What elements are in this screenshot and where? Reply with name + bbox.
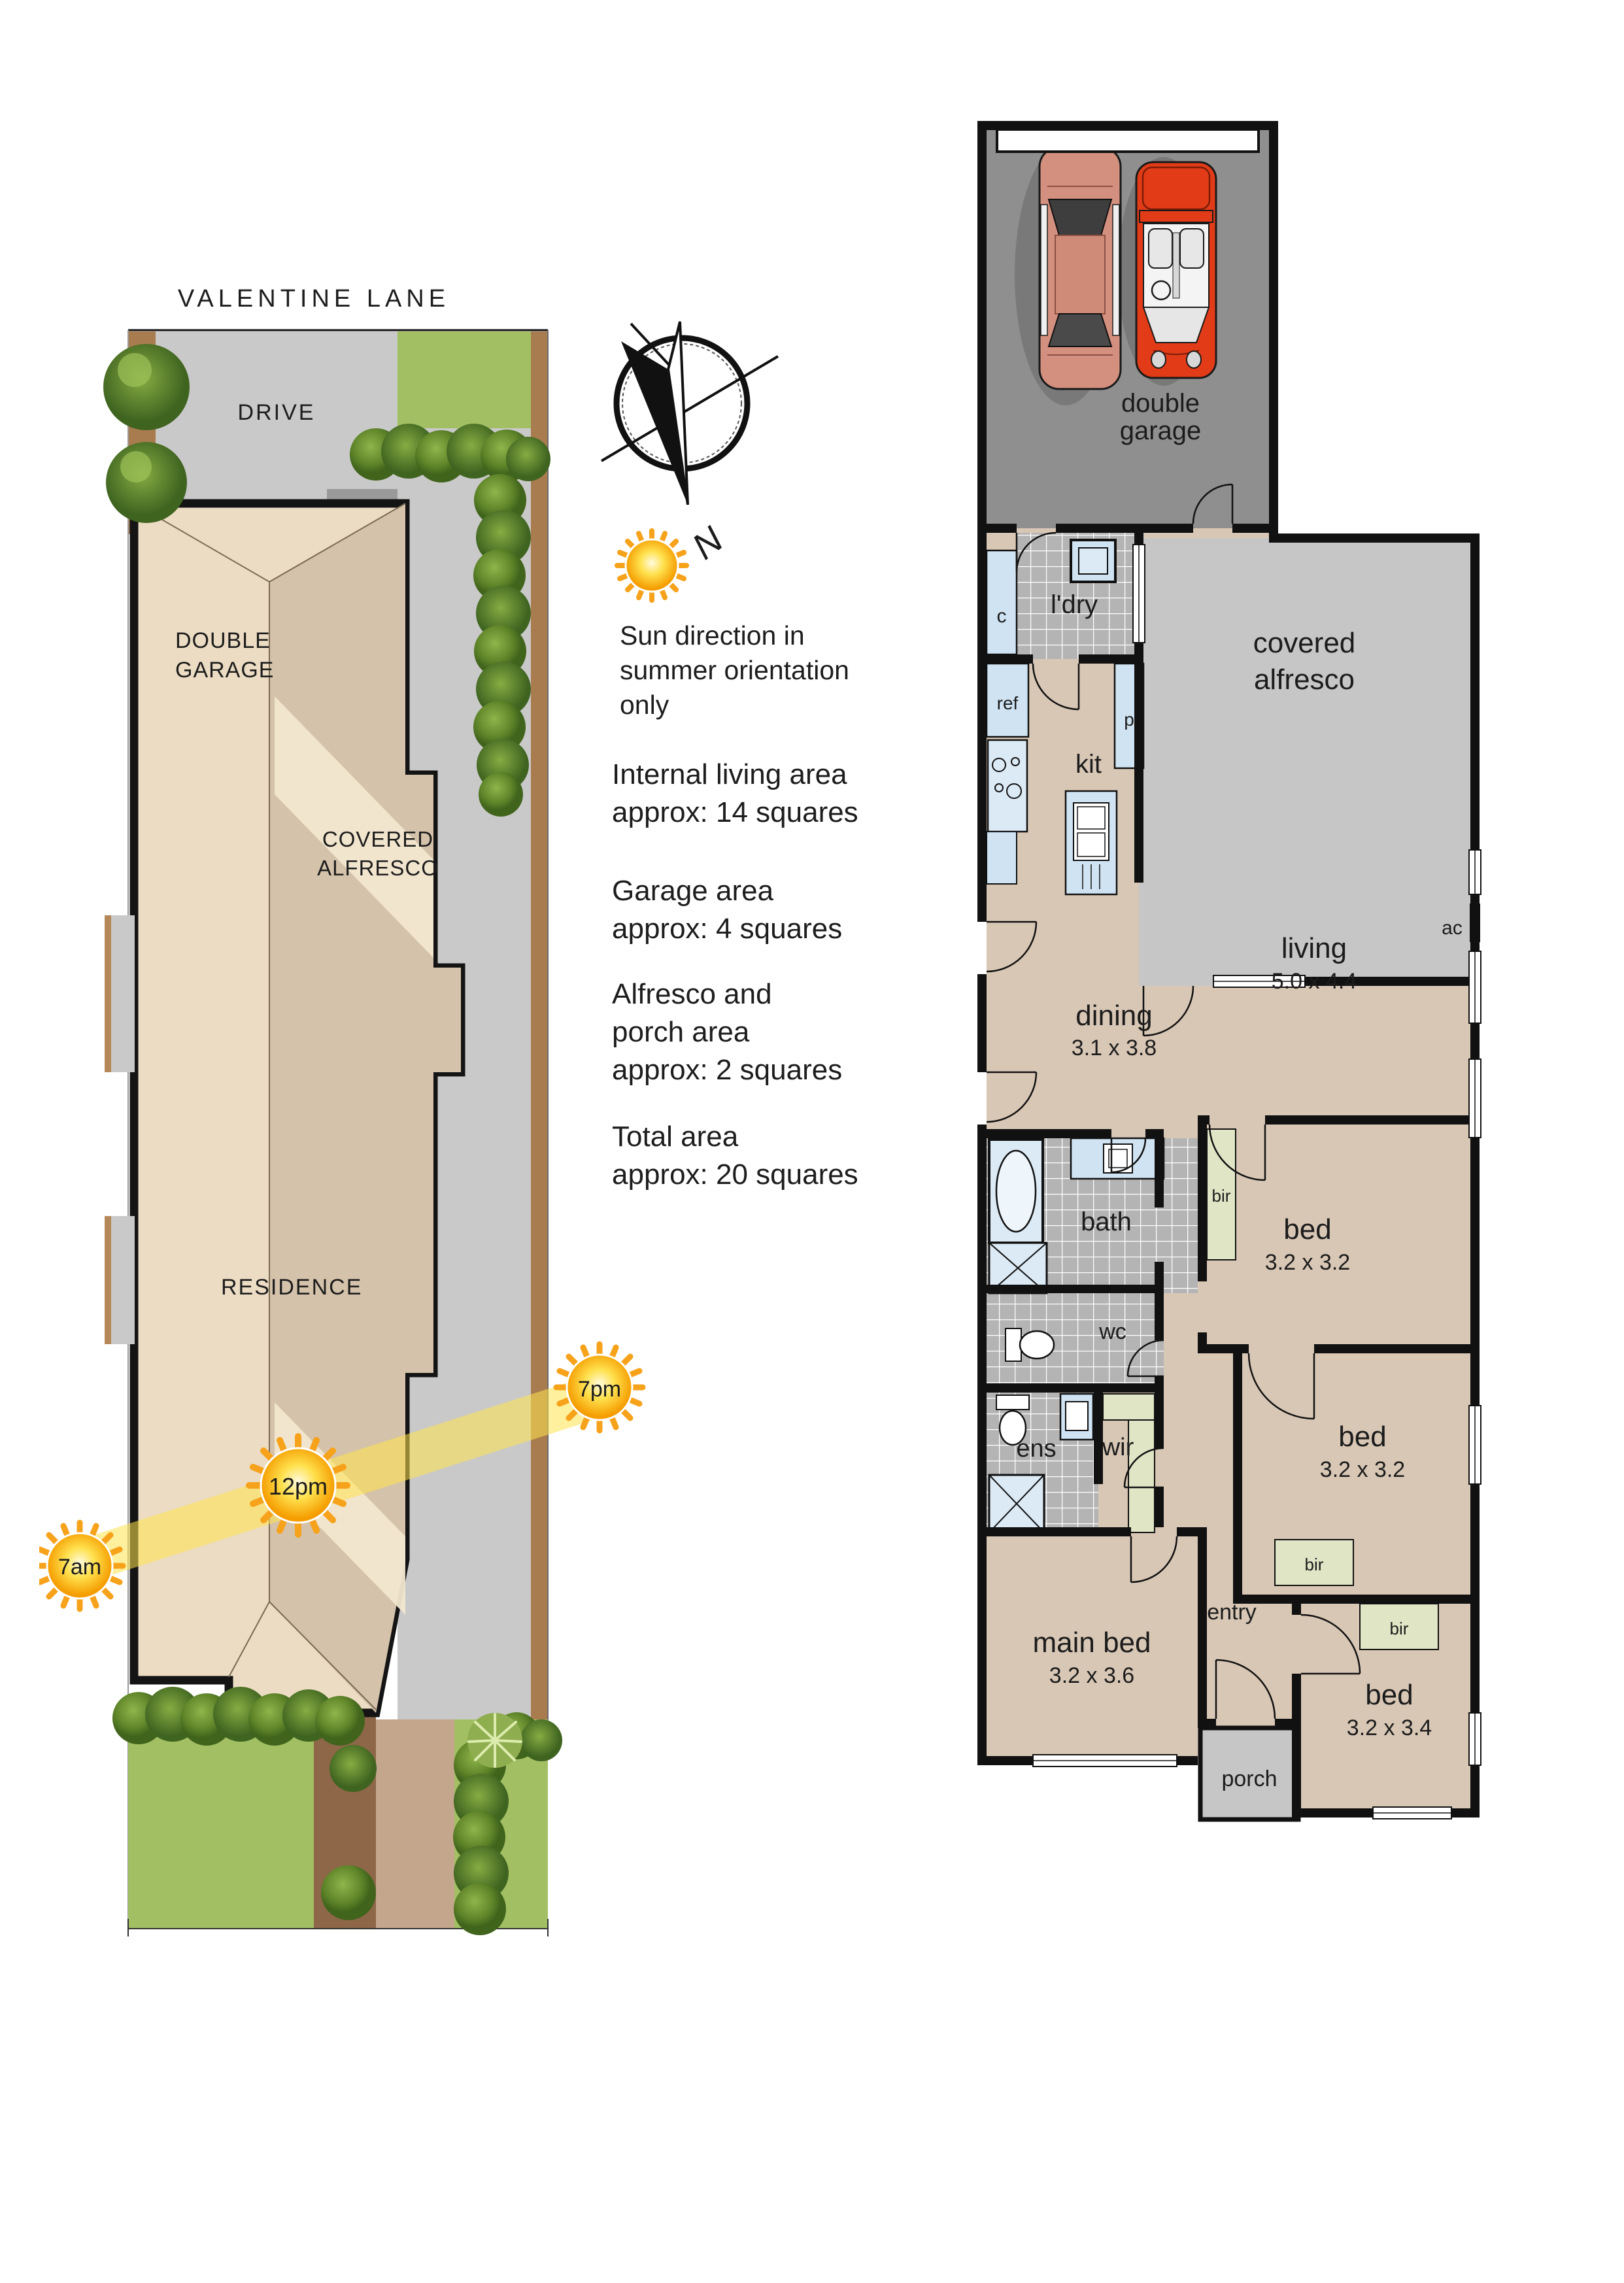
stat3-line1: Alfresco and — [612, 975, 1017, 1013]
site-plan: 7am 12pm 7pm — [39, 281, 647, 1955]
window-living-right-2 — [1469, 1059, 1481, 1138]
ensuite-label: ens — [1016, 1435, 1056, 1463]
cupboard — [987, 550, 1017, 654]
dining-label: dining — [1075, 1000, 1152, 1032]
sun-7pm-label: 7pm — [578, 1377, 621, 1402]
bed2-dims: 3.2 x 3.2 — [1320, 1457, 1405, 1482]
cutout-bottom-left — [977, 1765, 1200, 1844]
sun-note-line3: only — [620, 688, 1012, 722]
window-ldry — [1133, 545, 1145, 643]
site-double-garage-line1: DOUBLE — [175, 626, 299, 656]
stat4-line2: approx: 20 squares — [612, 1156, 1017, 1194]
alfresco-porch-area-stat: Alfresco and porch area approx: 2 square… — [612, 975, 1017, 1089]
plan-garage-label-line1: double — [1121, 389, 1200, 418]
stat2-line2: approx: 4 squares — [612, 910, 1017, 948]
window-bed2-right — [1469, 1406, 1481, 1484]
internal-living-area-stat: Internal living area approx: 14 squares — [612, 756, 1017, 832]
car-sedan-icon — [1040, 147, 1121, 389]
bir3-label: bir — [1390, 1619, 1409, 1638]
compass-icon: N — [601, 322, 778, 567]
site-double-garage-label: DOUBLE GARAGE — [175, 626, 299, 685]
island-sink-icon — [1066, 791, 1117, 894]
bath-label: bath — [1081, 1208, 1132, 1236]
dining-dims: 3.1 x 3.8 — [1072, 1036, 1157, 1060]
bed3-label: bed — [1365, 1679, 1413, 1711]
garage-area-stat: Garage area approx: 4 squares — [612, 872, 1017, 948]
site-double-garage-line2: GARAGE — [175, 656, 299, 685]
cutout-top-right — [1278, 111, 1510, 536]
total-area-stat: Total area approx: 20 squares — [612, 1118, 1017, 1194]
palm-tree — [467, 1713, 522, 1768]
kitchen-bench — [987, 832, 1017, 884]
bed3-dims: 3.2 x 3.4 — [1347, 1716, 1432, 1740]
car-sports-icon — [1136, 162, 1216, 378]
side-bed-strip-2 — [105, 1216, 111, 1344]
wc-toilet-icon — [1006, 1328, 1054, 1361]
stat3-line3: approx: 2 squares — [612, 1051, 1017, 1089]
sun-7am-icon: 7am — [39, 1523, 123, 1609]
window-living-right-1 — [1469, 951, 1481, 1023]
side-bed-strip-1 — [105, 915, 111, 1072]
dining-opening-1 — [977, 922, 987, 974]
legend-icons: N — [582, 297, 791, 624]
laundry-label: l'dry — [1051, 590, 1098, 619]
pantry-label: p — [1124, 709, 1134, 730]
sun-direction-note: Sun direction in summer orientation only — [620, 618, 1012, 722]
window-bed3-bottom — [1373, 1807, 1451, 1819]
stat4-line1: Total area — [612, 1118, 1017, 1156]
window-bed3-right — [1469, 1713, 1481, 1765]
side-window-well-2 — [111, 1216, 135, 1344]
ens-vanity-icon — [1060, 1394, 1093, 1440]
cupboard-label: c — [997, 605, 1007, 627]
garage-door — [997, 129, 1259, 152]
bed2-label: bed — [1338, 1421, 1386, 1453]
alfresco-label-line2: alfresco — [1254, 664, 1355, 696]
ac-label: ac — [1442, 917, 1463, 939]
sun-12pm-icon: 12pm — [249, 1436, 347, 1534]
window-main-bed — [1033, 1755, 1177, 1767]
wc-label: wc — [1098, 1319, 1126, 1344]
dining-opening-2 — [977, 1072, 987, 1125]
sun-note-line2: summer orientation — [620, 653, 1012, 688]
ens-shower-icon — [989, 1475, 1044, 1532]
legend-sun-icon — [617, 531, 686, 600]
front-lawn — [398, 331, 531, 428]
sun-7am-label: 7am — [58, 1555, 101, 1580]
site-covered-alfresco-line1: COVERED — [313, 825, 443, 854]
residence-label: RESIDENCE — [221, 1275, 352, 1300]
sun-note-line1: Sun direction in — [620, 618, 1012, 653]
alfresco-floor — [1139, 538, 1480, 986]
stat1-line1: Internal living area — [612, 756, 1017, 794]
compass-north-label: N — [685, 518, 731, 567]
stat3-line2: porch area — [612, 1013, 1017, 1051]
laundry-tub-icon — [1071, 540, 1115, 582]
sun-12pm-label: 12pm — [269, 1473, 328, 1500]
bed1-label: bed — [1283, 1213, 1331, 1245]
cooktop-icon — [988, 740, 1027, 832]
living-label: living — [1281, 932, 1347, 964]
main-bed-label: main bed — [1032, 1627, 1151, 1659]
wir-label: wir — [1102, 1434, 1134, 1461]
window-alfresco-right — [1469, 850, 1481, 894]
bir1-label: bir — [1212, 1186, 1231, 1206]
bed1-dims: 3.2 x 3.2 — [1265, 1250, 1350, 1275]
side-window-well-1 — [111, 915, 135, 1072]
site-covered-alfresco-line2: ALFRESCO — [313, 854, 443, 883]
floor-plan: double garage l'dry c ref p kit covered … — [968, 111, 1510, 1850]
stat1-line2: approx: 14 squares — [612, 794, 1017, 832]
main-bed-dims: 3.2 x 3.6 — [1049, 1663, 1134, 1688]
porch-label: porch — [1221, 1767, 1277, 1791]
drive-label: DRIVE — [224, 400, 329, 426]
fridge-label: ref — [997, 693, 1019, 713]
living-dims: 5.0 x 4.4 — [1272, 969, 1357, 994]
bathtub-icon — [989, 1140, 1043, 1243]
stat2-line1: Garage area — [612, 872, 1017, 910]
floorplan-page: VALENTINE LANE — [0, 0, 1624, 2283]
alfresco-label-line1: covered — [1253, 627, 1356, 659]
garden-bed-right — [531, 331, 548, 1753]
sun-7pm-icon: 7pm — [556, 1344, 643, 1430]
site-covered-alfresco-label: COVERED ALFRESCO — [313, 825, 443, 883]
bir2-label: bir — [1305, 1555, 1324, 1574]
entry-label: entry — [1207, 1600, 1257, 1625]
plan-garage-label-line2: garage — [1120, 416, 1202, 445]
bath-vanity-icon — [1071, 1138, 1164, 1179]
kitchen-label: kit — [1075, 750, 1102, 779]
